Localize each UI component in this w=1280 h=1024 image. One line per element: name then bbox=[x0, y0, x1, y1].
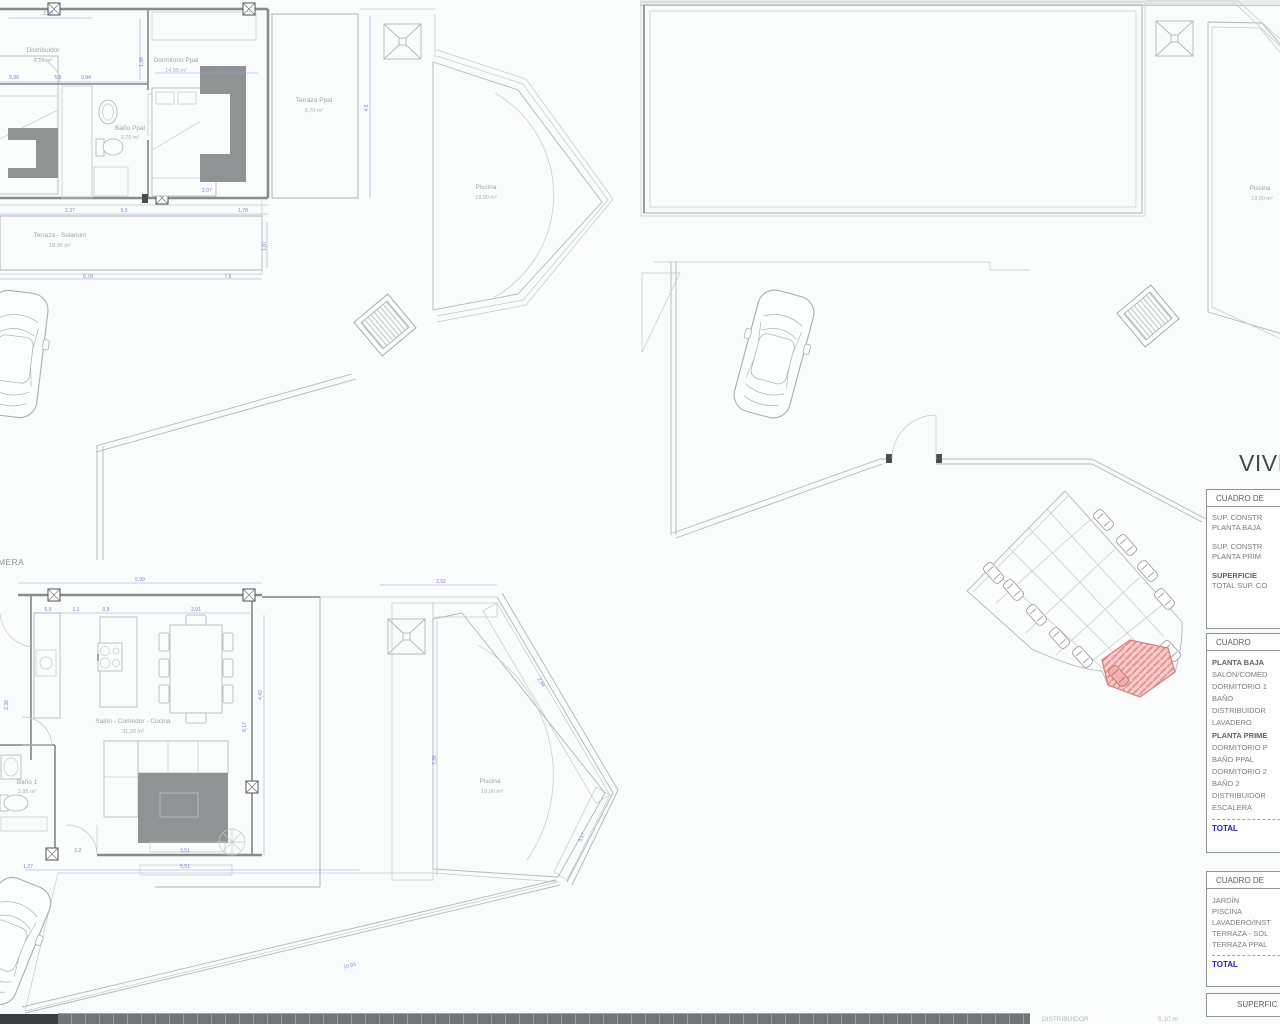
plot-boundary bbox=[96, 374, 356, 560]
svg-text:5,5: 5,5 bbox=[45, 607, 52, 613]
room-area-piscina: 19,00 m² bbox=[1251, 196, 1273, 202]
svg-text:1,27: 1,27 bbox=[23, 864, 33, 870]
svg-text:5,98: 5,98 bbox=[9, 75, 19, 81]
room-label-dormitorio-ppal: Dormitorio Ppal bbox=[154, 57, 199, 64]
svg-text:7,36: 7,36 bbox=[432, 755, 438, 765]
drain-grate-icon bbox=[1117, 285, 1179, 347]
table-superficies-construidas: CUADRO DE SUP. CONSTR PLANTA BAJA SUP. C… bbox=[1206, 489, 1280, 629]
plot-wall-left bbox=[671, 262, 676, 535]
table-row: TERRAZA - SOL bbox=[1212, 928, 1280, 939]
table-row: DISTRIBUIDOR bbox=[1212, 790, 1280, 802]
room-area-distribuidor: 4,10 m² bbox=[34, 58, 53, 64]
plan-planta-baja: Salón - Comedor - Cocina 31,30 m² Baño 1… bbox=[0, 555, 640, 1024]
room-area-bano-ppal: 3,75 m² bbox=[121, 135, 140, 141]
svg-text:2,37: 2,37 bbox=[65, 208, 75, 214]
pillar bbox=[48, 589, 60, 601]
table-row: TERRAZA PPAL bbox=[1212, 939, 1280, 950]
bed-main bbox=[152, 66, 246, 196]
highlighted-plot bbox=[1102, 640, 1175, 697]
table-row: SUP. CONSTR PLANTA BAJA bbox=[1212, 513, 1280, 532]
svg-text:6,16: 6,16 bbox=[200, 66, 210, 72]
car-icon bbox=[0, 288, 55, 420]
svg-text:5,51: 5,51 bbox=[180, 864, 190, 870]
wardrobe-hatch bbox=[62, 86, 92, 198]
room-label-piscina: Piscina bbox=[480, 778, 501, 785]
summary-panel: VIVI CUADRO DE SUP. CONSTR PLANTA BAJA S… bbox=[1206, 450, 1280, 1017]
svg-text:1,78: 1,78 bbox=[238, 208, 248, 214]
drain-grate-icon bbox=[354, 294, 416, 356]
room-label-piscina: Piscina bbox=[1250, 185, 1271, 192]
parapet bbox=[654, 262, 1030, 270]
svg-text:3,17: 3,17 bbox=[577, 832, 587, 844]
skylight-icon bbox=[384, 24, 421, 59]
svg-text:2,43: 2,43 bbox=[43, 11, 53, 17]
svg-text:1,98: 1,98 bbox=[139, 57, 145, 67]
bathroom-fixtures bbox=[94, 100, 128, 196]
room-area-terraza-ppal: 9,70 m² bbox=[305, 108, 324, 114]
room-label-terraza-solarium: Terraza - Solarium bbox=[33, 232, 86, 239]
svg-text:2,38: 2,38 bbox=[4, 700, 10, 710]
table-header: CUADRO DE bbox=[1207, 490, 1280, 507]
table-row: DISTRIBUIDOR bbox=[1212, 705, 1280, 717]
room-label-terraza-ppal: Terraza Ppal bbox=[296, 97, 333, 104]
svg-text:5,8: 5,8 bbox=[55, 75, 62, 81]
room-area-piscina: 19,00 m² bbox=[475, 195, 497, 201]
svg-text:8,17: 8,17 bbox=[242, 722, 248, 732]
dining-table bbox=[159, 615, 233, 723]
table-row: LAVADERO bbox=[1212, 717, 1280, 729]
svg-text:3,51: 3,51 bbox=[180, 848, 190, 854]
walls bbox=[0, 595, 497, 887]
bottom-plan-cut-block bbox=[0, 1014, 58, 1024]
table-row: ESCALERA bbox=[1212, 802, 1280, 814]
room-area-salon: 31,30 m² bbox=[122, 729, 144, 735]
skylight-icon bbox=[1156, 21, 1193, 56]
svg-text:4,5: 4,5 bbox=[364, 104, 370, 111]
bottom-plan-cut-strip bbox=[58, 1013, 1030, 1024]
svg-text:1,2: 1,2 bbox=[75, 848, 82, 854]
door-arc bbox=[67, 825, 97, 855]
table-superficies-exteriores: CUADRO DE JARDÍN PISCINA LAVADERO/INST T… bbox=[1206, 871, 1280, 987]
svg-text:2,91: 2,91 bbox=[191, 607, 201, 613]
table-superficies-utiles: CUADRO PLANTA BAJA SALÓN/COMED DORMITORI… bbox=[1206, 633, 1280, 853]
table-row: DORMITORIO P bbox=[1212, 742, 1280, 754]
svg-text:1,1: 1,1 bbox=[73, 607, 80, 613]
svg-text:9,3: 9,3 bbox=[121, 208, 128, 214]
plan-planta-primera: Distribuidor 4,10 m² Dormitorio Ppal 14,… bbox=[0, 0, 640, 582]
dashed-separator bbox=[1212, 819, 1280, 820]
svg-text:5,99: 5,99 bbox=[135, 577, 145, 583]
drawing-title: VIVI bbox=[1206, 450, 1280, 477]
pillar bbox=[46, 848, 58, 860]
table-header: CUADRO bbox=[1207, 634, 1280, 651]
bottom-strip-label: DISTRIBUIDOR bbox=[1042, 1016, 1089, 1023]
room-area-piscina: 19,00 m² bbox=[481, 789, 503, 795]
door-arc bbox=[0, 613, 31, 647]
pool bbox=[360, 9, 613, 322]
table-superficie-parcela: SUPERFIC bbox=[1206, 993, 1280, 1017]
svg-text:4,42: 4,42 bbox=[258, 690, 264, 700]
pool bbox=[1146, 1, 1280, 344]
table-row: PLANTA BAJA bbox=[1212, 657, 1280, 669]
table-row: BAÑO bbox=[1212, 693, 1280, 705]
svg-text:7,6: 7,6 bbox=[225, 274, 232, 280]
table-row: SUPERFICIE TOTAL SUP. CO bbox=[1212, 571, 1280, 590]
kitchen bbox=[34, 613, 137, 718]
table-row: BAÑO PPAL bbox=[1212, 754, 1280, 766]
table-row: LAVADERO/INST bbox=[1212, 917, 1280, 928]
table-row: SUP. CONSTR PLANTA PRIM bbox=[1212, 542, 1280, 561]
drawing-sheet: Distribuidor 4,10 m² Dormitorio Ppal 14,… bbox=[0, 0, 1280, 1024]
room-label-piscina: Piscina bbox=[476, 184, 497, 191]
table-row: BAÑO 2 bbox=[1212, 778, 1280, 790]
bottom-strip-label: 5,10 m bbox=[1158, 1016, 1178, 1023]
table-row: JARDÍN bbox=[1212, 895, 1280, 906]
room-label-salon: Salón - Comedor - Cocina bbox=[95, 718, 171, 725]
svg-text:2,94: 2,94 bbox=[536, 677, 546, 689]
total-label: TOTAL bbox=[1212, 824, 1280, 833]
pillar bbox=[243, 3, 255, 15]
room-label-bano-ppal: Baño Ppal bbox=[115, 125, 146, 132]
room-label-bano1: Baño 1 bbox=[17, 779, 38, 786]
total-label: TOTAL bbox=[1212, 960, 1280, 969]
plant-icon bbox=[219, 829, 245, 855]
door-arc bbox=[22, 717, 52, 745]
svg-text:2,92: 2,92 bbox=[436, 579, 446, 585]
car-icon bbox=[725, 285, 822, 423]
terraza-solarium-paving bbox=[0, 216, 262, 270]
table-row: SALÓN/COMED bbox=[1212, 669, 1280, 681]
svg-text:0,9: 0,9 bbox=[103, 607, 110, 613]
closet-hatch bbox=[152, 12, 256, 40]
pillar bbox=[246, 781, 258, 793]
plan-cubierta: Piscina 19,00 m² bbox=[640, 0, 1280, 550]
table-header: SUPERFIC bbox=[1207, 994, 1280, 1012]
roof bbox=[641, 2, 1145, 216]
table-row: DORMITORIO 1 bbox=[1212, 681, 1280, 693]
table-row: PISCINA bbox=[1212, 906, 1280, 917]
room-area-dormitorio-ppal: 14,95 m² bbox=[165, 68, 187, 74]
svg-text:0,94: 0,94 bbox=[81, 75, 91, 81]
svg-text:6,78: 6,78 bbox=[83, 274, 93, 280]
table-row: PLANTA PRIME bbox=[1212, 730, 1280, 742]
dashed-separator bbox=[1212, 955, 1280, 956]
terraza-ppal-paving bbox=[272, 14, 358, 198]
room-area-bano1: 3,95 m² bbox=[18, 789, 37, 795]
dimension-texts: 5,99 5,5 1,1 0,9 2,91 2,92 4,42 8,17 7,3… bbox=[4, 577, 587, 970]
svg-text:1,87: 1,87 bbox=[262, 241, 268, 251]
site-plan bbox=[950, 485, 1210, 715]
skylight-icon bbox=[388, 619, 425, 654]
sofa bbox=[104, 741, 228, 852]
svg-text:2,07: 2,07 bbox=[202, 188, 212, 194]
room-area-terraza-solarium: 18,95 m² bbox=[49, 243, 71, 249]
svg-text:10,93: 10,93 bbox=[343, 962, 357, 971]
table-header: CUADRO DE bbox=[1207, 872, 1280, 889]
table-row: DORMITORIO 2 bbox=[1212, 766, 1280, 778]
pillar bbox=[243, 589, 255, 601]
room-label-distribuidor: Distribuidor bbox=[27, 47, 61, 54]
gate-triangle bbox=[642, 273, 680, 352]
